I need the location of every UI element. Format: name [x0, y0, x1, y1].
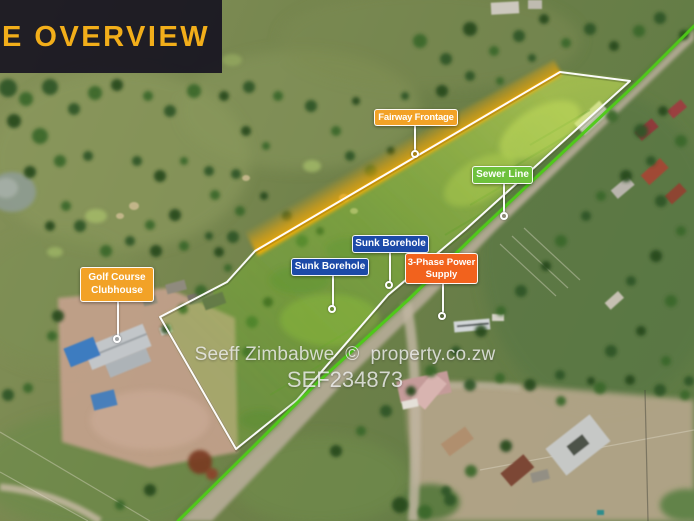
- title-banner: E OVERVIEW: [0, 0, 222, 73]
- callout-dot: [385, 281, 393, 289]
- callout-dot: [113, 335, 121, 343]
- callout-dot: [438, 312, 446, 320]
- callout-line: [117, 301, 119, 336]
- label-golf-course-clubhouse: Golf Course Clubhouse: [80, 267, 154, 302]
- label-sewer-line: Sewer Line: [472, 166, 533, 184]
- callout-line: [332, 275, 334, 306]
- callout-line: [503, 183, 505, 212]
- label-three-phase-power: 3-Phase Power Supply: [405, 253, 478, 284]
- listing-photo: Fairway Frontage Sewer Line Sunk Borehol…: [0, 0, 694, 521]
- label-sunk-borehole-lower: Sunk Borehole: [291, 258, 369, 276]
- watermark-line1: Seeff Zimbabwe © property.co.zw: [188, 344, 502, 366]
- label-text: Sewer Line: [476, 169, 529, 182]
- label-text: Sunk Borehole: [355, 238, 426, 251]
- callout-line: [442, 283, 444, 312]
- page-title: E OVERVIEW: [2, 21, 210, 54]
- callout-line: [389, 252, 391, 282]
- callout-line: [414, 125, 416, 151]
- watermark: Seeff Zimbabwe © property.co.zw SEF23487…: [188, 344, 502, 393]
- callout-dot: [500, 212, 508, 220]
- label-text: Sunk Borehole: [295, 261, 366, 274]
- label-sunk-borehole-upper: Sunk Borehole: [352, 235, 429, 253]
- label-text: Fairway Frontage: [378, 112, 453, 124]
- label-text: 3-Phase Power Supply: [406, 257, 477, 281]
- callout-dot: [411, 150, 419, 158]
- label-text: Golf Course Clubhouse: [81, 272, 153, 297]
- label-fairway-frontage: Fairway Frontage: [374, 109, 458, 126]
- callout-dot: [328, 305, 336, 313]
- watermark-ref: SEF234873: [188, 367, 502, 393]
